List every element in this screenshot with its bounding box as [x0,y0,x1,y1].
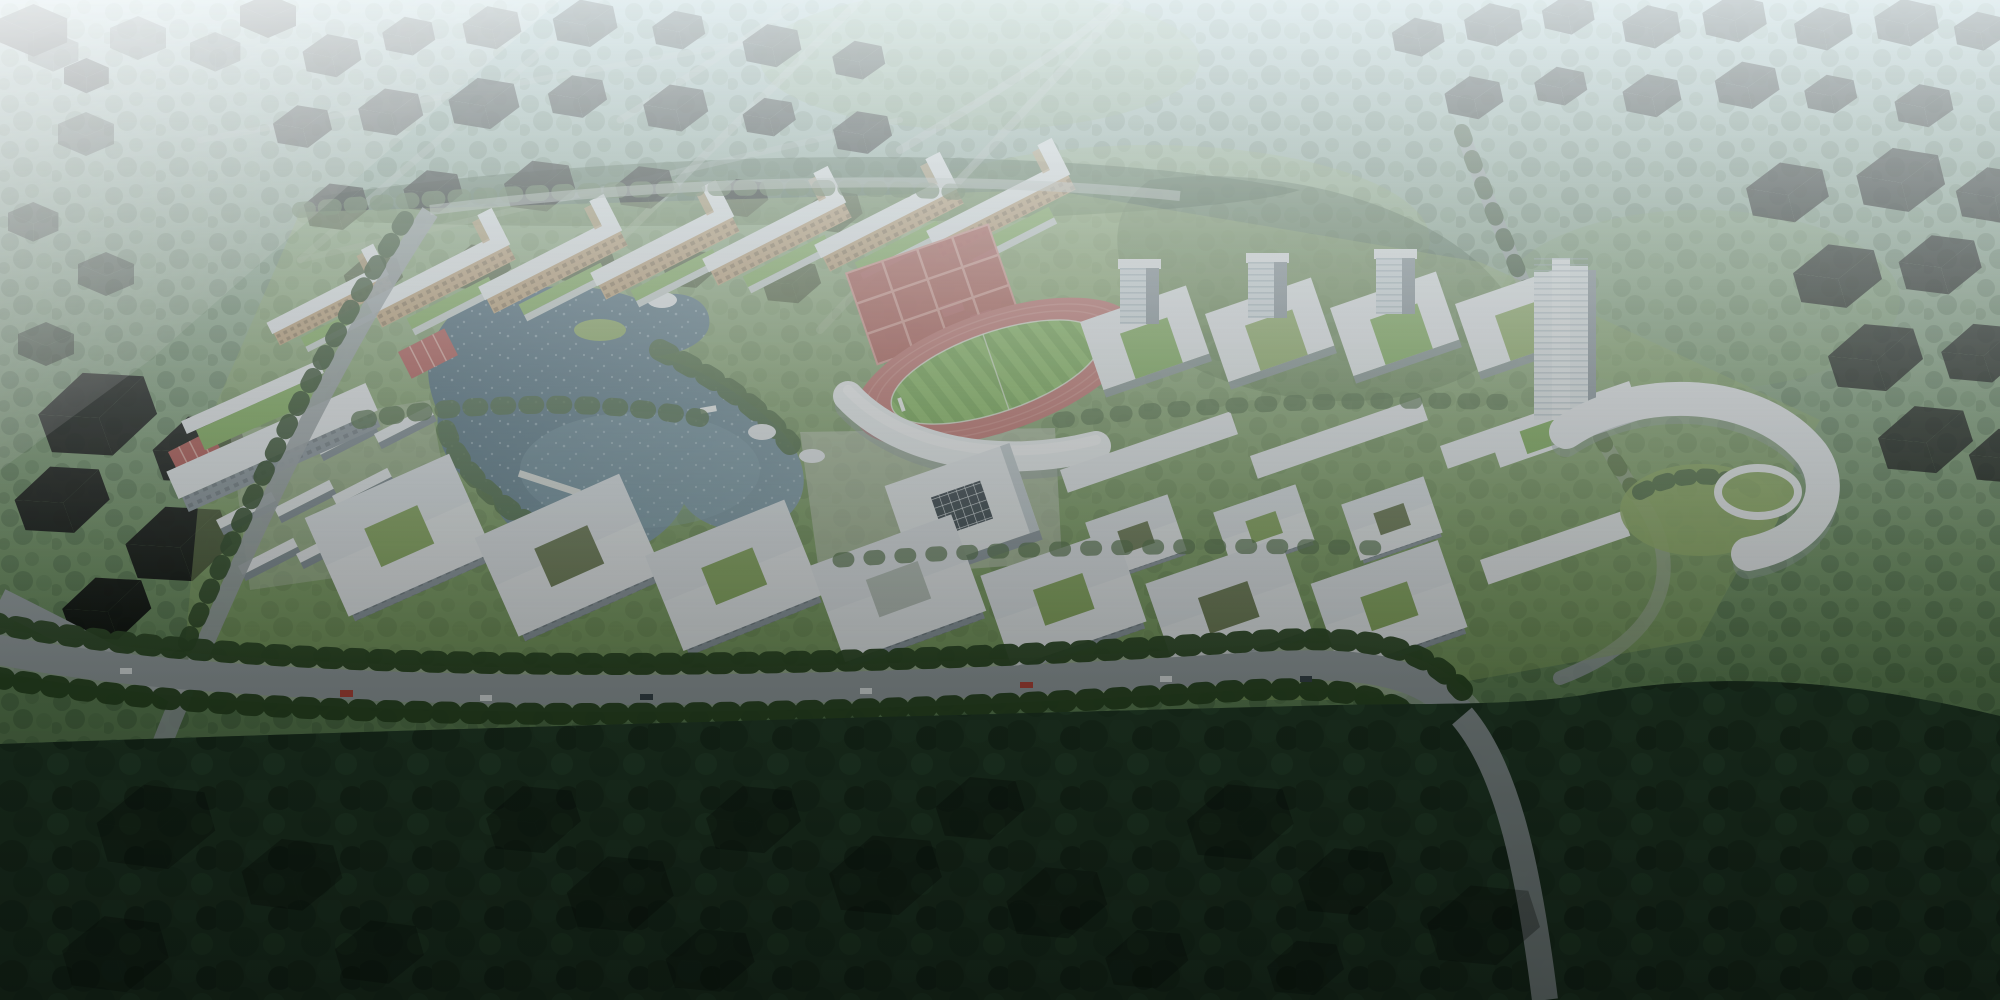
bottom-vignette [0,0,2000,1000]
render-canvas [0,0,2000,1000]
campus-aerial-rendering [0,0,2000,1000]
